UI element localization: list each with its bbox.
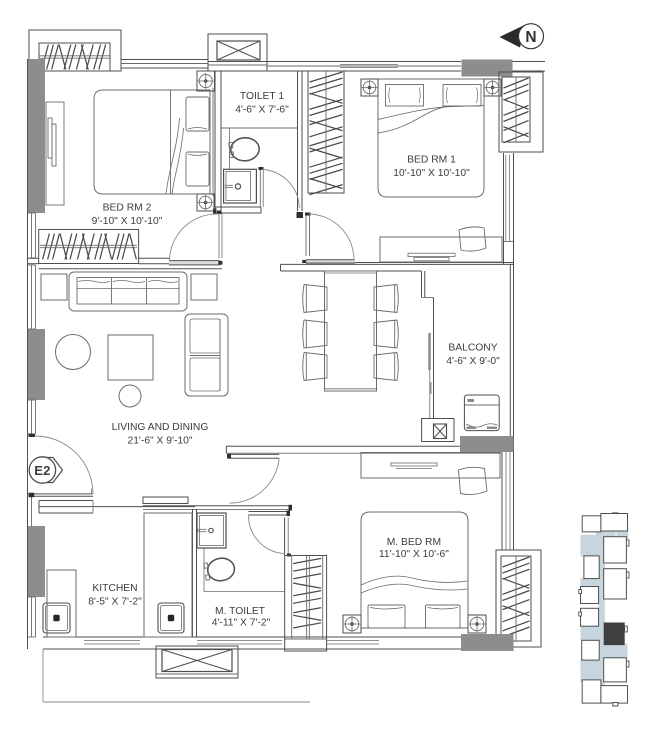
svg-text:TOILET 1: TOILET 1 — [240, 91, 285, 102]
svg-text:KITCHEN: KITCHEN — [92, 583, 137, 594]
svg-text:BED RM 2: BED RM 2 — [103, 203, 152, 214]
svg-text:BED RM 1: BED RM 1 — [407, 155, 456, 166]
svg-text:9'-10" X 10'-10": 9'-10" X 10'-10" — [92, 216, 163, 227]
svg-text:8'-5" X 7'-2": 8'-5" X 7'-2" — [88, 596, 142, 607]
svg-text:M. TOILET: M. TOILET — [215, 606, 266, 617]
svg-text:M. BED RM: M. BED RM — [387, 537, 441, 548]
svg-text:4'-11" X 7'-2": 4'-11" X 7'-2" — [212, 617, 271, 628]
svg-text:E2: E2 — [34, 463, 50, 478]
svg-text:4'-6" X 7'-6": 4'-6" X 7'-6" — [235, 105, 289, 116]
svg-text:LIVING AND DINING: LIVING AND DINING — [112, 422, 209, 433]
svg-text:11'-10" X 10'-6": 11'-10" X 10'-6" — [379, 549, 449, 560]
svg-text:21'-6" X 9'-10": 21'-6" X 9'-10" — [127, 436, 192, 447]
svg-text:4'-6" X 9'-0": 4'-6" X 9'-0" — [446, 356, 500, 367]
svg-text:10'-10" X 10'-10": 10'-10" X 10'-10" — [393, 168, 470, 179]
svg-text:N: N — [525, 29, 536, 46]
svg-text:BALCONY: BALCONY — [448, 343, 497, 354]
